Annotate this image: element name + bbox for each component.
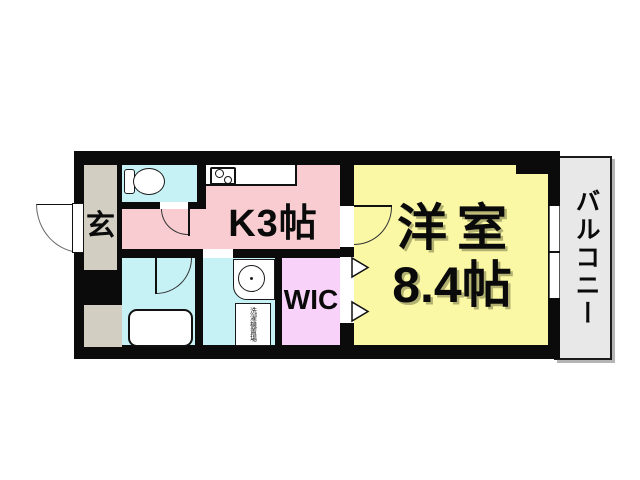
toilet-door-opening (160, 202, 188, 209)
bathroom-door-leaf (155, 258, 157, 294)
balcony-window-divider (549, 251, 560, 253)
washroom-door-opening (203, 249, 233, 258)
stove-burner-icon (224, 176, 232, 184)
western-door-opening (340, 206, 354, 247)
western-room-label: 洋室 8.4帖 (356, 198, 548, 316)
western-room-label-line2: 8.4帖 (392, 257, 512, 314)
toilet-bowl-icon (133, 168, 165, 195)
wic-label: WIC (281, 284, 341, 316)
wall-pillar-notch (516, 165, 548, 174)
toilet-door-leaf (188, 209, 190, 236)
washbasin-drain-dot (250, 277, 253, 280)
balcony-label: バルコニー (562, 162, 610, 354)
stove-burner-icon (215, 169, 224, 178)
washing-machine-area: 洗濯機置場 (235, 303, 271, 346)
floorplan-canvas: バルコニー 玄 K3帖 洗濯機置場 WIC (0, 0, 640, 480)
kitchen-label: K3帖 (200, 197, 346, 241)
meter-bay (84, 305, 122, 347)
balcony-area: バルコニー (554, 156, 612, 360)
entrance-door-leaf (72, 203, 84, 253)
entrance-label: 玄 (84, 204, 117, 242)
western-room-label-line1: 洋室 (397, 200, 517, 257)
bathtub-icon (128, 309, 193, 347)
washing-machine-label: 洗濯機置場 (236, 304, 270, 345)
